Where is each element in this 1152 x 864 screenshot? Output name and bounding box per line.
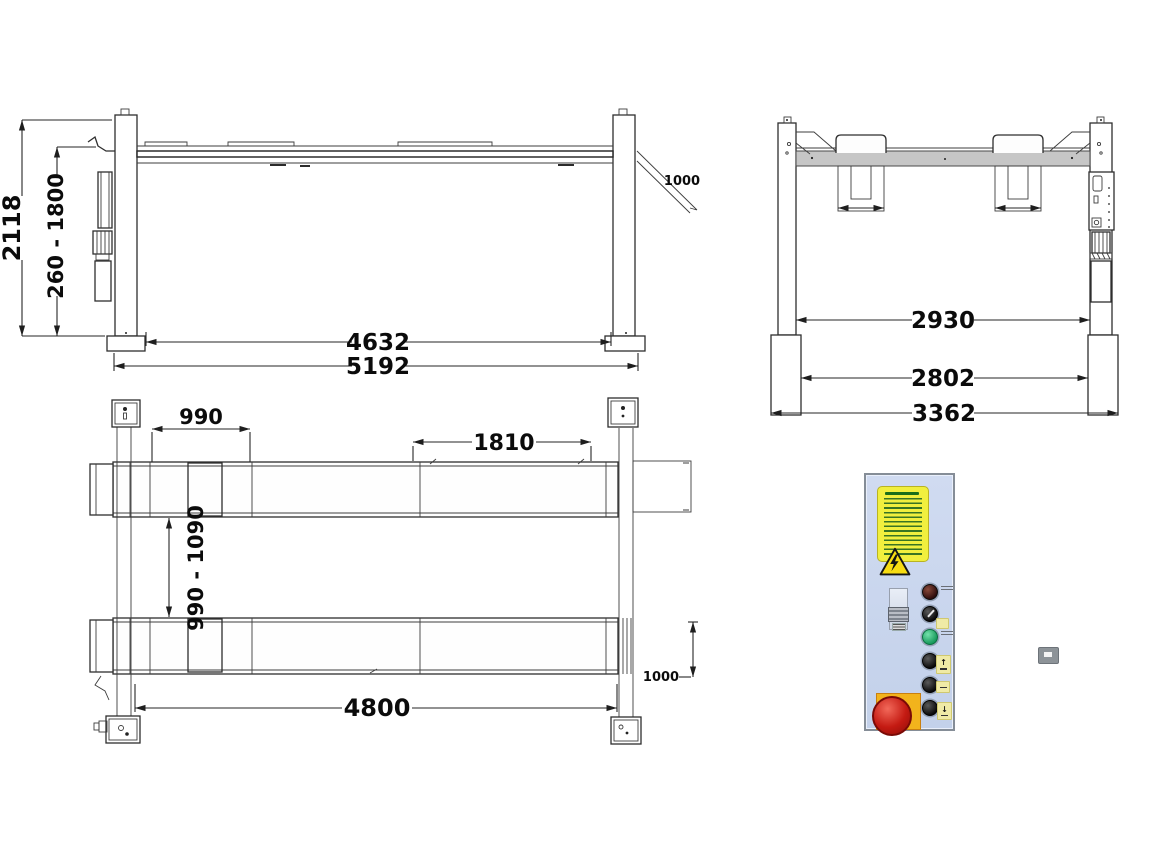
up-arrow-icon: ↑ [940, 659, 947, 667]
front-oil-tank [1091, 261, 1111, 302]
selector-needle [927, 609, 935, 617]
dim-front-offset: 990 [179, 405, 223, 429]
plan-pad-top-left [112, 400, 140, 427]
front-right-runway-section [993, 135, 1043, 153]
control-panel: ↑ ↓ [864, 473, 955, 731]
technical-drawing-canvas: 1000 2118 260 - 1800 4632 5192 [0, 0, 1152, 864]
emergency-stop-button[interactable] [872, 696, 912, 736]
lock-label-chip [936, 681, 950, 693]
down-button[interactable] [922, 700, 938, 716]
front-left-base [771, 335, 801, 415]
dim-plan-ramp: 1000 [643, 670, 679, 685]
up-label-chip: ↑ [936, 655, 951, 674]
side-left-base [107, 336, 145, 351]
plan-cable [95, 676, 109, 700]
dim-overall-height: 2118 [0, 195, 26, 262]
lift-drawing-svg: 1000 2118 260 - 1800 4632 5192 [0, 0, 1152, 864]
side-control-box [98, 172, 112, 228]
down-arrow-icon: ↓ [941, 706, 948, 714]
lever-scale-label [892, 623, 906, 631]
dim-lift-range: 260 - 1800 [44, 173, 68, 299]
down-label-text [941, 715, 948, 717]
plan-top-ramp [633, 461, 691, 512]
plan-folded-ramp [623, 618, 631, 674]
lowering-lever[interactable] [889, 588, 908, 630]
dim-overall-base-width: 3362 [912, 401, 976, 427]
dim-inner-span: 4632 [346, 330, 410, 356]
dim-side-ramp: 1000 [664, 174, 700, 189]
lever-handle[interactable] [888, 607, 909, 622]
side-right-post [613, 115, 635, 336]
front-crossbeam [796, 151, 1090, 166]
lock-label-text [940, 687, 947, 689]
up-label-text [940, 668, 947, 670]
dim-center-window: 1810 [473, 431, 534, 456]
dim-clear-width: 2930 [911, 308, 975, 334]
side-runway-tabs [145, 142, 492, 146]
plan-pad-top-right [608, 398, 638, 427]
side-left-post [115, 115, 137, 336]
front-view-drawing: 2930 2802 3362 [771, 117, 1118, 427]
side-oil-tank [95, 261, 111, 301]
side-runway-deck [137, 151, 613, 157]
electric-hazard-icon [879, 547, 911, 577]
dim-runway-gap: 990 - 1090 [184, 505, 208, 631]
front-left-post [778, 123, 796, 335]
start-button-label [941, 631, 953, 637]
power-indicator-label [941, 586, 953, 592]
power-indicator-button[interactable] [922, 584, 938, 600]
front-right-base [1088, 335, 1118, 415]
plan-pad-bottom-right [611, 717, 641, 744]
selector-label-chip [936, 618, 949, 629]
sticker-title-bar [885, 492, 919, 495]
plan-view-drawing: 990 1810 990 - 1090 4800 1000 [90, 398, 698, 744]
side-view-drawing: 1000 2118 260 - 1800 4632 5192 [0, 109, 700, 380]
dim-inner-base-width: 2802 [911, 366, 975, 392]
front-left-runway-section [836, 135, 886, 153]
dim-overall-length: 5192 [346, 354, 410, 380]
embedded-thumbnail-icon [1038, 647, 1059, 664]
side-runway-hook [88, 137, 115, 151]
dim-runway-length: 4800 [344, 694, 411, 722]
down-label-chip: ↓ [937, 702, 952, 720]
start-button[interactable] [922, 629, 938, 645]
